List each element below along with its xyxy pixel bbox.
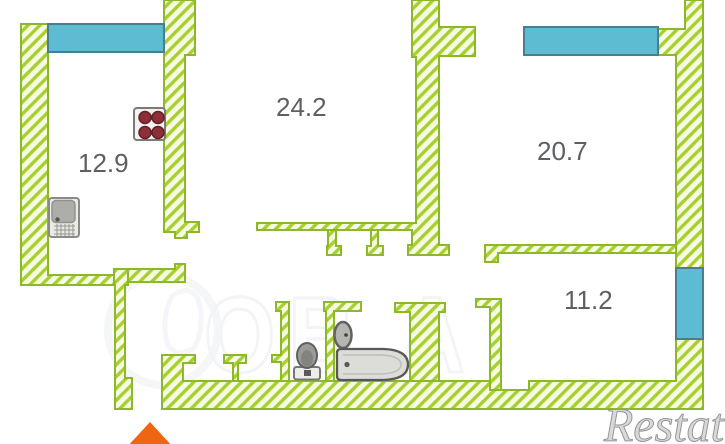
svg-text:24.2: 24.2 <box>276 92 327 122</box>
svg-text:20.7: 20.7 <box>537 136 588 166</box>
svg-text:11.2: 11.2 <box>564 285 613 315</box>
svg-text:Restate: Restate <box>603 399 725 444</box>
svg-text:О: О <box>204 275 275 396</box>
svg-text:12.9: 12.9 <box>78 148 129 178</box>
